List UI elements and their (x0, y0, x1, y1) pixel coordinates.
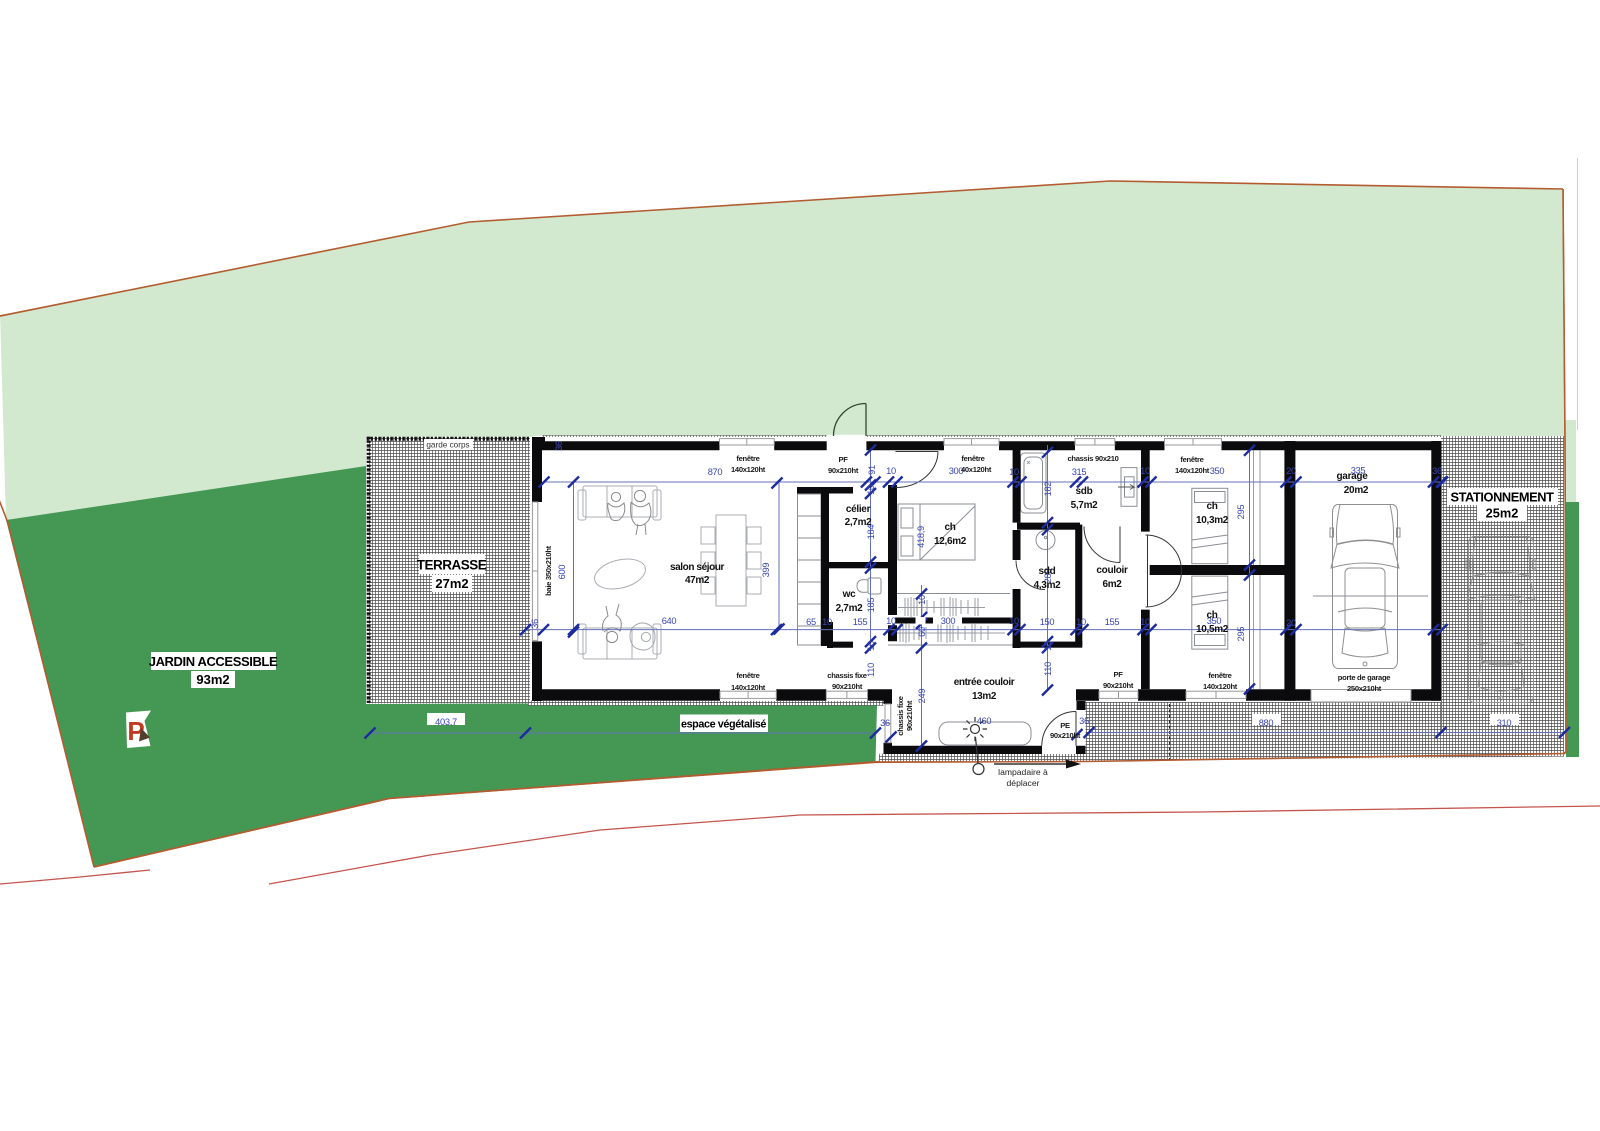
svg-text:880: 880 (1259, 718, 1274, 728)
svg-text:140x120ht: 140x120ht (1203, 682, 1238, 691)
svg-text:93m2: 93m2 (196, 672, 229, 687)
svg-text:155: 155 (1105, 617, 1120, 627)
svg-text:ch: ch (1206, 501, 1217, 512)
svg-text:20: 20 (1286, 466, 1296, 476)
svg-text:20m2: 20m2 (1344, 485, 1369, 496)
svg-text:10: 10 (1043, 641, 1053, 651)
svg-text:12,6m2: 12,6m2 (934, 536, 967, 547)
svg-text:ch: ch (944, 522, 955, 533)
svg-text:140x120ht: 140x120ht (731, 465, 766, 474)
svg-text:36: 36 (1079, 716, 1089, 726)
svg-text:155: 155 (853, 617, 868, 627)
svg-text:STATIONNEMENT: STATIONNEMENT (1450, 490, 1554, 505)
svg-text:350: 350 (1210, 466, 1225, 476)
svg-text:10: 10 (1140, 617, 1150, 627)
svg-text:182: 182 (1043, 482, 1053, 497)
svg-text:fenêtre: fenêtre (1180, 455, 1203, 464)
svg-text:403,7: 403,7 (435, 717, 457, 727)
svg-text:ch: ch (1206, 610, 1217, 621)
svg-text:10,5m2: 10,5m2 (1196, 624, 1229, 635)
svg-text:10: 10 (866, 641, 876, 651)
svg-text:célier: célier (846, 504, 871, 515)
svg-text:315: 315 (1072, 467, 1087, 477)
svg-text:90x210ht: 90x210ht (828, 466, 859, 475)
svg-text:36: 36 (530, 619, 540, 629)
svg-text:27m2: 27m2 (435, 576, 468, 591)
svg-text:10,3m2: 10,3m2 (1196, 515, 1229, 526)
svg-text:36: 36 (554, 441, 564, 451)
svg-text:sdb: sdb (1076, 486, 1093, 497)
svg-text:2,7m2: 2,7m2 (845, 517, 873, 528)
svg-text:65: 65 (806, 617, 816, 627)
svg-text:fenêtre: fenêtre (961, 454, 984, 463)
svg-text:300: 300 (941, 616, 956, 626)
svg-text:140x120ht: 140x120ht (731, 683, 766, 692)
svg-text:sdd: sdd (1039, 566, 1056, 577)
svg-text:4,3m2: 4,3m2 (1034, 580, 1062, 591)
svg-text:TERRASSE: TERRASSE (417, 558, 487, 573)
svg-text:399: 399 (761, 563, 771, 578)
svg-text:fenêtre: fenêtre (736, 454, 759, 463)
svg-text:90x210ht: 90x210ht (1103, 681, 1134, 690)
svg-text:fenêtre: fenêtre (736, 671, 759, 680)
svg-text:10: 10 (1009, 467, 1019, 477)
svg-text:espace végétalisé: espace végétalisé (681, 719, 766, 731)
svg-text:PF: PF (838, 455, 848, 464)
svg-text:porte de garage: porte de garage (1338, 673, 1391, 682)
svg-text:13m2: 13m2 (972, 691, 997, 702)
svg-text:10: 10 (1076, 617, 1086, 627)
svg-text:310: 310 (1497, 718, 1512, 728)
svg-text:250x210ht: 250x210ht (1347, 684, 1382, 693)
svg-text:baie 350x210ht: baie 350x210ht (544, 545, 553, 596)
svg-text:90x210ht: 90x210ht (832, 682, 863, 691)
svg-text:10: 10 (917, 595, 927, 605)
svg-text:36: 36 (880, 718, 890, 728)
svg-text:chassis 90x210: chassis 90x210 (1067, 454, 1118, 463)
svg-text:90x210ht: 90x210ht (1050, 731, 1081, 740)
svg-text:110: 110 (1043, 662, 1053, 676)
svg-text:10: 10 (886, 616, 896, 626)
svg-text:110: 110 (866, 663, 876, 677)
svg-text:460: 460 (977, 716, 992, 726)
svg-text:PE: PE (1060, 721, 1070, 730)
svg-text:870: 870 (708, 467, 723, 477)
svg-text:47m2: 47m2 (685, 575, 710, 586)
svg-text:entrée couloir: entrée couloir (954, 677, 1015, 688)
svg-text:640: 640 (662, 616, 677, 626)
svg-text:600: 600 (557, 565, 567, 580)
svg-text:418,9: 418,9 (916, 526, 926, 548)
svg-text:garde corps: garde corps (426, 441, 469, 450)
svg-text:10: 10 (1009, 616, 1019, 626)
svg-text:salon séjour: salon séjour (670, 562, 725, 573)
svg-text:25m2: 25m2 (1486, 506, 1519, 521)
svg-text:2,7m2: 2,7m2 (836, 603, 864, 614)
svg-text:JARDIN ACCESSIBLE: JARDIN ACCESSIBLE (149, 654, 278, 669)
svg-text:10: 10 (886, 466, 896, 476)
svg-text:wc: wc (842, 589, 856, 600)
svg-text:295: 295 (1236, 627, 1246, 642)
svg-text:140x120ht: 140x120ht (1175, 466, 1210, 475)
svg-text:10: 10 (866, 485, 876, 495)
svg-text:5,7m2: 5,7m2 (1071, 500, 1099, 511)
svg-text:10: 10 (1140, 466, 1150, 476)
svg-text:6m2: 6m2 (1102, 579, 1122, 590)
svg-text:garage: garage (1337, 471, 1369, 482)
svg-text:40x120ht: 40x120ht (961, 465, 992, 474)
svg-text:PF: PF (1113, 670, 1123, 679)
svg-text:185: 185 (866, 598, 876, 613)
svg-text:91: 91 (867, 465, 877, 475)
svg-text:10: 10 (822, 617, 832, 627)
svg-text:chassis fixe: chassis fixe (827, 671, 867, 680)
svg-text:déplacer: déplacer (1007, 778, 1040, 788)
svg-text:60: 60 (917, 627, 927, 637)
svg-text:150: 150 (1040, 617, 1055, 627)
svg-text:couloir: couloir (1096, 565, 1128, 576)
svg-text:249: 249 (917, 689, 927, 704)
svg-text:90x210ht: 90x210ht (905, 700, 914, 731)
svg-text:20: 20 (1286, 618, 1296, 628)
svg-text:lampadaire à: lampadaire à (998, 767, 1048, 777)
svg-text:fenêtre: fenêtre (1208, 671, 1231, 680)
svg-text:295: 295 (1236, 505, 1246, 520)
svg-text:chassis fixe: chassis fixe (896, 696, 905, 736)
svg-text:36: 36 (1432, 466, 1442, 476)
